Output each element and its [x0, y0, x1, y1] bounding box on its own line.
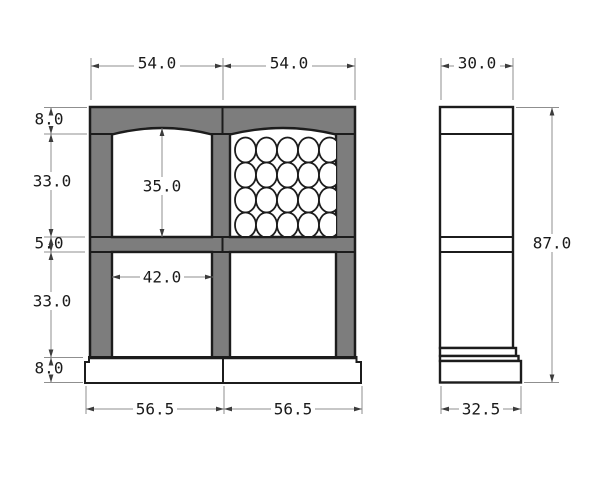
wine-bottle-circle	[256, 213, 277, 238]
wine-bottle-circle	[256, 163, 277, 188]
wine-bottle-circle	[235, 163, 256, 188]
wine-bottle-circle	[277, 188, 298, 213]
wine-bottle-circle	[298, 188, 319, 213]
front-view	[85, 107, 361, 383]
lower-right-opening	[230, 252, 336, 358]
wine-bottle-circle	[235, 188, 256, 213]
dim-label-lower-opening: 33.0	[33, 292, 72, 311]
dim-label-base2-width: 56.5	[274, 400, 313, 419]
dim-label-opening-width: 42.0	[143, 268, 182, 287]
dim-label-shelf: 5.0	[35, 234, 64, 253]
dim-label-bay1-width: 54.0	[138, 54, 177, 73]
wine-bottle-circle	[256, 138, 277, 163]
side-base-step-1	[440, 348, 516, 356]
dim-label-bay2-width: 54.0	[270, 54, 309, 73]
wine-bottle-circle	[277, 213, 298, 238]
dim-label-base-height: 8.0	[35, 359, 64, 378]
dim-label-base-depth: 32.5	[462, 400, 501, 419]
dim-label-top-rail: 8.0	[35, 110, 64, 129]
dim-label-side-depth: 30.0	[458, 54, 497, 73]
side-view	[440, 107, 521, 383]
wine-bottle-circle	[298, 213, 319, 238]
wine-bottle-circle	[298, 163, 319, 188]
dim-label-opening-height: 35.0	[143, 177, 182, 196]
wine-bottle-circle	[277, 163, 298, 188]
wine-bottle-circle	[235, 213, 256, 238]
dim-label-base1-width: 56.5	[136, 400, 175, 419]
wine-bottle-circle	[298, 138, 319, 163]
side-base-plinth	[440, 361, 521, 383]
wine-bottle-circle	[277, 138, 298, 163]
wine-bottle-circle	[256, 188, 277, 213]
dim-label-upper-opening: 33.0	[33, 172, 72, 191]
technical-drawing: 54.0 54.0 30.0 8.0 33.0 5.0 33.0 8.0 35.…	[0, 0, 600, 477]
drawing-canvas: 54.0 54.0 30.0 8.0 33.0 5.0 33.0 8.0 35.…	[0, 0, 600, 477]
dim-label-total-height: 87.0	[533, 234, 572, 253]
side-body	[440, 107, 513, 348]
wine-bottle-circle	[235, 138, 256, 163]
